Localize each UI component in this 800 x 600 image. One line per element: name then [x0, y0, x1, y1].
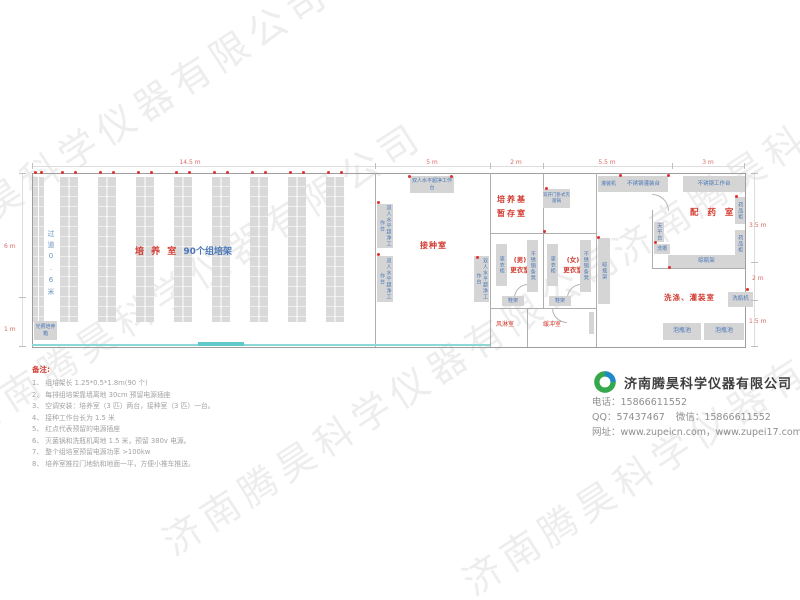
- medium-storage-label: 培养基 暂存室: [497, 193, 527, 221]
- power-outlet-dot: [543, 230, 546, 233]
- power-outlet-dot: [377, 253, 380, 256]
- power-outlet-dot: [597, 236, 600, 239]
- power-outlet-dot: [408, 175, 411, 178]
- bottle-drying-rack: 晾瓶架: [598, 238, 610, 304]
- filling-machine: 灌装机: [598, 176, 619, 192]
- power-outlet-dot: [61, 171, 64, 174]
- dim-tick: [751, 346, 758, 347]
- wall: [490, 173, 491, 347]
- power-outlet-dot: [735, 195, 738, 198]
- dim-tick: [375, 163, 376, 169]
- culture-rack-row: [250, 177, 268, 322]
- dim-tick: [543, 163, 544, 169]
- dim-tick: [751, 173, 758, 174]
- power-outlet-dot: [746, 288, 749, 291]
- power-outlet-dot: [476, 256, 479, 259]
- bottle-washer: 洗瓶机: [728, 292, 753, 307]
- culture-rack-row: [326, 177, 344, 322]
- buffer-room-label: 缓冲室: [543, 319, 561, 328]
- power-outlet-dot: [175, 171, 178, 174]
- dim-label-right: 3.5 m: [749, 222, 766, 229]
- company-block: 济南腾昊科学仪器有限公司 电话：15866611552 QQ：57437467 …: [592, 369, 792, 440]
- power-outlet-dot: [251, 171, 254, 174]
- power-outlet-dot: [667, 174, 670, 177]
- wall: [652, 268, 745, 269]
- power-outlet-dot: [377, 201, 380, 204]
- culture-room-name: 培 养 室: [135, 247, 178, 257]
- power-outlet-dot: [74, 171, 77, 174]
- notes-block: 备注: 1、 组培架长 1.25*0.5*1.8m(90 个)2、 每排组培架靠…: [32, 364, 332, 470]
- note-item: 7、 整个组培室预留电源功率 >100kw: [32, 447, 332, 459]
- steel-bench: 不锈钢条凳: [580, 240, 591, 292]
- clean-bench: 双人水平超净工作台: [377, 256, 393, 302]
- dim-tick: [751, 262, 758, 263]
- note-item: 8、 培养室推拉门地轨和地面一平，方便小推车推送。: [32, 459, 332, 471]
- power-outlet-dot: [327, 171, 330, 174]
- medium-storage-line1: 培养基: [497, 193, 527, 207]
- inoculation-room-label: 接种室: [420, 240, 447, 251]
- note-item: 2、 每排组培架靠墙离地 30cm 预留电源插座: [32, 390, 332, 402]
- filling-table: 不锈钢灌装台: [619, 176, 668, 192]
- shoe-rack: 鞋架: [502, 296, 524, 306]
- power-outlet-dot: [34, 171, 37, 174]
- dimension-line: [22, 173, 23, 347]
- sliding-door: [198, 342, 244, 346]
- dim-tick: [672, 163, 673, 169]
- soaking-pool: 泡瓶池: [704, 323, 744, 340]
- notes-list: 1、 组培架长 1.25*0.5*1.8m(90 个)2、 每排组培架靠墙离地 …: [32, 378, 332, 470]
- power-outlet-dot: [150, 171, 153, 174]
- clean-bench: 双人水平超净工作台: [474, 256, 489, 302]
- dim-label-left: 6 m: [4, 243, 16, 250]
- medium-storage-line2: 暂存室: [497, 207, 527, 221]
- autoclave: 双开门卧式灭菌锅: [543, 189, 570, 208]
- power-outlet-dot: [99, 171, 102, 174]
- power-outlet-dot: [654, 241, 657, 244]
- note-item: 3、 空调安装：培养室（3 匹）两台，接种室（3 匹）一台。: [32, 401, 332, 413]
- wall: [490, 233, 596, 234]
- clean-bench: 双人水平超净工作台: [377, 204, 393, 248]
- note-item: 6、 灭菌锅和洗瓶机离地 1.5 米，预留 380v 电源。: [32, 436, 332, 448]
- sink: 洗槽: [654, 244, 670, 254]
- power-outlet-dot: [137, 171, 140, 174]
- medicine-cabinet: 药品柜: [735, 230, 745, 257]
- aisle-label: 过道0.6米: [46, 230, 56, 299]
- locker: 更衣柜: [496, 244, 507, 286]
- soaking-pool: 泡瓶池: [663, 323, 701, 340]
- washing-room-label: 洗涤、灌装室: [664, 292, 715, 303]
- door-leaf: [589, 312, 594, 334]
- locker: 更衣柜: [547, 244, 558, 286]
- power-outlet-dot: [226, 171, 229, 174]
- dim-label-left: 1 m: [4, 326, 16, 333]
- dim-label-top: 2 m: [508, 159, 524, 166]
- company-qq: QQ：57437467: [592, 412, 665, 423]
- power-outlet-dot: [668, 266, 671, 269]
- culture-rack-count: 90个组培架: [183, 247, 232, 257]
- power-outlet-dot: [213, 171, 216, 174]
- power-outlet-dot: [264, 171, 267, 174]
- lighted-incubator: 光照培养箱: [34, 321, 57, 340]
- dimension-line: [32, 166, 745, 167]
- dim-tick: [19, 346, 26, 347]
- power-outlet-dot: [619, 174, 622, 177]
- company-phone: 电话：15866611552: [592, 395, 792, 410]
- dim-tick: [490, 163, 491, 169]
- dim-label-top: 5 m: [424, 159, 440, 166]
- dim-label-top: 3 m: [700, 159, 716, 166]
- dim-tick: [32, 163, 33, 169]
- window-wall: [32, 344, 490, 346]
- company-wechat: 微信：15866611552: [676, 412, 771, 423]
- air-shower-label: 风淋室: [496, 319, 514, 328]
- power-outlet-dot: [289, 171, 292, 174]
- dispensary-label: 配 药 室: [690, 206, 736, 218]
- wall: [652, 210, 653, 268]
- wall: [527, 308, 528, 347]
- wall: [596, 173, 597, 347]
- bottle-drying-rack: 晾瓶架: [668, 255, 745, 268]
- culture-room-label: 培 养 室 90个组培架: [135, 244, 232, 257]
- medicine-cabinet: 药品柜: [735, 197, 745, 224]
- dim-tick: [744, 163, 745, 169]
- power-outlet-dot: [40, 171, 43, 174]
- dim-label-top: 14.5 m: [177, 159, 202, 166]
- note-item: 4、 接种工作台长为 1.5 米: [32, 413, 332, 425]
- clean-bench: 双人水平超净工作台: [410, 176, 454, 193]
- dim-label-right: 2 m: [752, 275, 764, 282]
- note-item: 5、 红点代表预留的电源插座: [32, 424, 332, 436]
- shoe-rack: 鞋架: [549, 296, 571, 306]
- dim-tick: [751, 300, 758, 301]
- steel-bench: 不锈钢条凳: [527, 240, 538, 292]
- balance-table: 天平台: [654, 222, 664, 242]
- power-outlet-dot: [112, 171, 115, 174]
- dim-tick: [19, 297, 26, 298]
- company-name: 济南腾昊科学仪器有限公司: [624, 373, 792, 392]
- company-logo: [592, 369, 618, 395]
- power-outlet-dot: [340, 171, 343, 174]
- power-outlet-dot: [450, 175, 453, 178]
- culture-rack-row: [98, 177, 116, 322]
- dim-label-top: 5.5 m: [596, 159, 617, 166]
- culture-rack-row: [288, 177, 306, 322]
- dim-label-right: 1.5 m: [749, 318, 766, 325]
- culture-rack-row: [33, 177, 44, 322]
- power-outlet-dot: [302, 171, 305, 174]
- dim-tick: [19, 173, 26, 174]
- note-item: 1、 组培架长 1.25*0.5*1.8m(90 个): [32, 378, 332, 390]
- wall: [375, 173, 376, 347]
- work-table: 不锈钢工作台: [683, 176, 745, 192]
- notes-title: 备注:: [32, 364, 332, 375]
- floor-plan-page: 济南腾昊科学仪器有限公司 济南腾昊科学仪器有限公司 济南腾昊科学仪器有限公司 济…: [0, 0, 800, 600]
- wall: [490, 308, 596, 309]
- power-outlet-dot: [545, 187, 548, 190]
- company-website: 网址：www.zupeicn.com，www.zupei17.com: [592, 425, 792, 440]
- power-outlet-dot: [188, 171, 191, 174]
- culture-rack-row: [60, 177, 78, 322]
